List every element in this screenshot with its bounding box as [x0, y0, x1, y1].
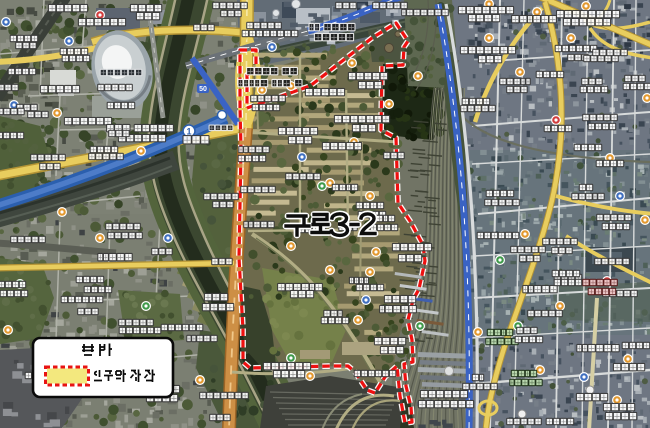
svg-text:50: 50: [199, 86, 207, 93]
svg-text:1: 1: [186, 127, 191, 137]
